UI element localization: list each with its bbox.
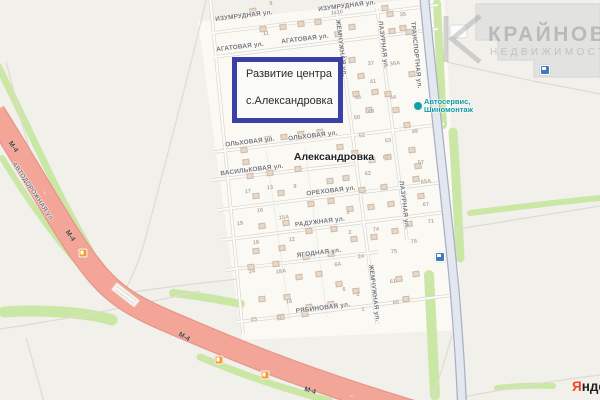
house-number: 2 <box>348 230 352 236</box>
house-number: 76 <box>411 239 418 246</box>
building <box>408 147 416 154</box>
building <box>412 271 420 278</box>
building <box>392 107 400 114</box>
house-number: 41 <box>370 79 377 86</box>
fuel-station-icon[interactable] <box>261 371 270 380</box>
house-number: 11 <box>263 31 270 38</box>
house-number: 74 <box>373 227 380 234</box>
building <box>240 147 248 154</box>
yandex-logo[interactable]: Яндекс <box>572 379 600 394</box>
annotation-line1: Развитие центра <box>246 69 338 80</box>
building <box>305 228 313 235</box>
house-number: 49 <box>412 129 419 136</box>
street-label: ЖЕМЧУЖНАЯ ул. <box>367 264 381 322</box>
building <box>258 223 266 230</box>
street-label: РАДУЖНАЯ ул. <box>295 215 346 228</box>
building <box>358 187 366 194</box>
house-number: 1к10 <box>331 9 344 16</box>
yandex-logo-first-letter: Я <box>572 379 582 394</box>
house-number: 46 <box>355 95 362 102</box>
building <box>357 73 365 80</box>
highway-route-label: М-4 <box>64 229 76 243</box>
street-label: АГАТОВАЯ ул. <box>216 41 264 54</box>
house-number: 9 <box>269 1 273 7</box>
highway-route-label: М-4 <box>7 140 19 154</box>
building <box>295 274 303 281</box>
house-number: 18 <box>286 299 293 306</box>
house-number: 49 <box>368 109 375 116</box>
highway-route-label: М-4 <box>177 331 191 343</box>
building <box>367 204 375 211</box>
house-number: 67 <box>423 202 430 209</box>
house-number: 1 <box>346 210 350 216</box>
building <box>294 166 302 173</box>
house-number: 17 <box>276 315 283 322</box>
house-number: 17 <box>245 189 252 196</box>
building <box>252 193 260 200</box>
house-number: 57 <box>383 155 390 162</box>
building <box>348 24 356 31</box>
building <box>326 178 334 185</box>
street-label: АГАТОВАЯ ул. <box>281 33 329 46</box>
building <box>391 228 399 235</box>
building <box>388 28 396 35</box>
house-number: 6 <box>342 287 346 293</box>
fuel-station-icon[interactable] <box>215 356 224 365</box>
house-number: 24 <box>249 269 256 276</box>
house-number: 57 <box>418 160 425 167</box>
lane-arrow-icon: ← <box>40 188 50 198</box>
building <box>387 201 395 208</box>
street-label: ТРАНСПОРТНАЯ ул. <box>409 21 423 89</box>
house-number: 61 <box>390 279 397 286</box>
house-number: 2 <box>356 292 360 298</box>
building <box>402 296 410 303</box>
building <box>342 175 350 182</box>
house-number: 19 <box>237 221 244 228</box>
house-number: 36А <box>390 60 401 67</box>
house-number: 6А <box>334 262 342 269</box>
yandex-logo-rest: ндекс <box>582 379 600 394</box>
house-number: 52 <box>359 133 366 140</box>
house-number: 15А <box>279 214 290 221</box>
house-number: 1 <box>361 307 365 313</box>
annotation-line2: с.Александровка <box>246 96 338 107</box>
street-label: ОЛЬХОВАЯ ул. <box>288 130 338 143</box>
building <box>412 176 420 183</box>
building <box>307 201 315 208</box>
building <box>280 134 288 141</box>
building <box>327 198 335 205</box>
house-number: 53 <box>385 138 392 145</box>
building <box>336 144 344 151</box>
street-label: РЯБИНОВАЯ ул. <box>295 301 350 315</box>
building <box>242 159 250 166</box>
building <box>371 89 379 96</box>
poi-autoservice[interactable]: Автосервис, Шиномонтаж <box>424 98 473 114</box>
bus-stop-icon[interactable] <box>435 252 445 262</box>
street-label: ИЗУМРУДНАЯ ул. <box>318 0 376 13</box>
building <box>278 245 286 252</box>
house-number: 16 <box>257 208 264 215</box>
street-label: ОРЕХОВАЯ ул. <box>306 185 356 198</box>
autoservice-icon[interactable] <box>413 101 423 111</box>
house-number: 12 <box>289 237 296 244</box>
house-number: 18А <box>276 268 287 275</box>
lane-arrow-icon: ← <box>244 367 253 376</box>
house-number: 9 <box>293 184 297 190</box>
house-number: 44 <box>390 95 397 102</box>
building <box>252 248 260 255</box>
building <box>381 5 389 12</box>
building <box>297 21 305 28</box>
building <box>417 193 425 200</box>
highway-route-label: М-4 <box>303 386 316 396</box>
annotation-box: Развитие центра с.Александровка <box>232 57 343 123</box>
house-number: 62 <box>365 171 372 178</box>
fuel-station-icon[interactable] <box>79 249 88 258</box>
house-number: 18 <box>253 240 260 247</box>
building <box>314 19 322 26</box>
house-number: 35 <box>400 12 407 19</box>
house-number: 75 <box>391 249 398 256</box>
building <box>395 276 403 283</box>
house-number: 71 <box>428 219 435 226</box>
lane-arrow-icon: ← <box>125 294 135 304</box>
map[interactable]: ИЗУМРУДНАЯ ул.ИЗУМРУДНАЯ ул.АГАТОВАЯ ул.… <box>0 0 600 400</box>
house-number: 23 <box>251 317 258 324</box>
street-label: ЛАЗУРНАЯ ул. <box>398 181 411 230</box>
house-number: 24 <box>358 254 365 261</box>
place-label-aleksandrovka: Александровка <box>294 151 374 163</box>
building <box>330 226 338 233</box>
house-number: 13 <box>267 185 274 192</box>
street-label: ЯГОДНАЯ ул. <box>296 247 341 259</box>
house-number: 37 <box>368 61 375 68</box>
building <box>348 57 356 64</box>
bus-stop-icon[interactable] <box>540 65 550 75</box>
building <box>272 261 280 268</box>
building <box>277 190 285 197</box>
building <box>380 184 388 191</box>
house-number: 65А <box>421 178 432 185</box>
building <box>279 24 287 31</box>
house-number: 7 <box>344 56 348 62</box>
building <box>370 234 378 241</box>
building <box>386 11 394 18</box>
poi-autoservice-line2: Шиномонтаж <box>424 106 473 114</box>
building <box>315 271 323 278</box>
house-number: 65 <box>393 300 400 307</box>
lane-arrow-icon: ← <box>348 392 356 400</box>
street-label: ИЗУМРУДНАЯ ул. <box>215 9 273 23</box>
house-number: 50 <box>354 115 361 122</box>
building <box>403 122 411 129</box>
building <box>350 236 358 243</box>
street-label: ОЛЬХОВАЯ ул. <box>225 136 275 149</box>
building <box>258 296 266 303</box>
